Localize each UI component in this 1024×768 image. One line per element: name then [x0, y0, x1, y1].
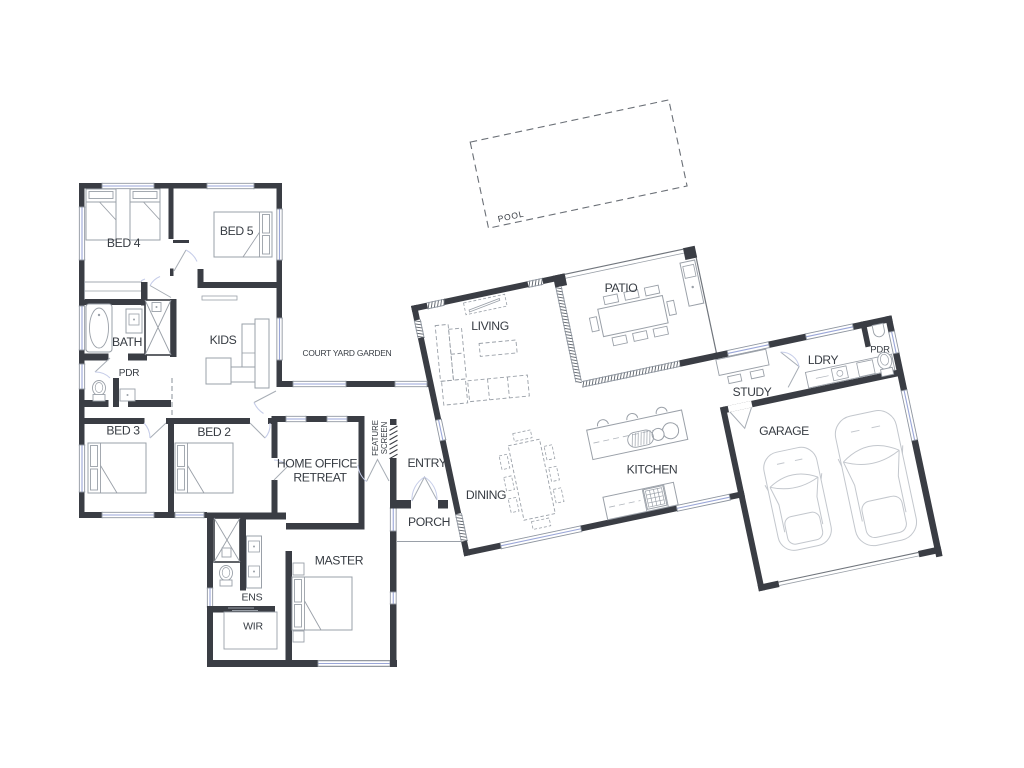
svg-text:HOME OFFICE /: HOME OFFICE / [277, 457, 364, 471]
svg-text:BED 3: BED 3 [106, 424, 140, 438]
svg-text:GARAGE: GARAGE [759, 424, 809, 438]
svg-text:BED 4: BED 4 [107, 236, 141, 250]
svg-text:BED 2: BED 2 [197, 425, 231, 439]
svg-text:BATH: BATH [112, 335, 142, 349]
svg-text:ENTRY: ENTRY [407, 456, 446, 470]
svg-text:LDRY: LDRY [808, 353, 839, 367]
svg-text:ENS: ENS [242, 592, 263, 604]
svg-text:FEATURE: FEATURE [371, 420, 380, 456]
svg-text:COURT YARD GARDEN: COURT YARD GARDEN [302, 348, 391, 358]
svg-text:SCREEN: SCREEN [380, 422, 389, 455]
svg-text:MASTER: MASTER [315, 554, 364, 568]
svg-text:LIVING: LIVING [471, 319, 509, 333]
svg-text:PATIO: PATIO [605, 281, 638, 295]
svg-text:PDR: PDR [870, 345, 890, 356]
svg-text:KITCHEN: KITCHEN [627, 463, 678, 477]
svg-text:BED 5: BED 5 [220, 224, 254, 238]
svg-text:PORCH: PORCH [408, 515, 450, 529]
svg-text:DINING: DINING [466, 488, 506, 502]
svg-text:WIR: WIR [243, 621, 263, 633]
svg-text:RETREAT: RETREAT [293, 471, 347, 485]
svg-text:STUDY: STUDY [733, 385, 772, 399]
svg-text:PDR: PDR [119, 368, 140, 379]
svg-text:KIDS: KIDS [210, 333, 237, 347]
